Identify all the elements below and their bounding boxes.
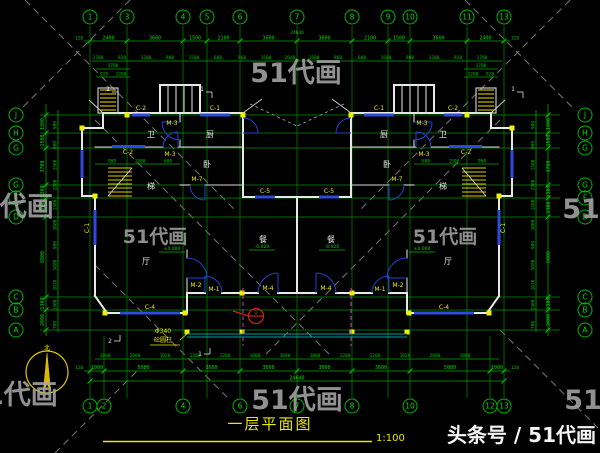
grid-bubble-right-label: G: [582, 144, 588, 153]
room-label-bath: 卫: [147, 130, 155, 139]
opening-label: M-7: [391, 176, 402, 183]
grid-bubble-top-label: 6: [238, 13, 243, 22]
grid-bubble-right-label: G: [582, 181, 588, 190]
dim-text-top: 1500: [393, 36, 405, 42]
column-marker: [103, 311, 108, 316]
dim-text-top: 3600: [432, 36, 444, 42]
north-label: 北: [44, 344, 50, 352]
dim-text-top: 2100: [217, 36, 229, 42]
grid-bubble-top-label: 5: [205, 13, 210, 22]
dim-text-left: 1500: [40, 134, 46, 146]
opening-label: C-1: [374, 105, 384, 112]
room-label-dining: 餐: [259, 235, 267, 244]
dim-text-right: 1300: [546, 185, 552, 197]
dim-text-top: 2400: [479, 36, 491, 42]
door-swing-arc: [243, 118, 258, 133]
dim-text-bottom: 3600: [205, 365, 217, 371]
dim-text-right-fine: 2200: [531, 179, 537, 190]
dim-text-top-fine: 600: [358, 55, 366, 61]
window: [255, 196, 275, 199]
plan-title: 一层平面图: [227, 415, 312, 433]
exterior-wall: [487, 296, 499, 313]
dim-text-bottom-fine: 2080: [130, 353, 141, 359]
room-label-stair: 梯: [439, 181, 447, 191]
section-mark: 2: [106, 86, 110, 93]
opening-label: C-2: [123, 149, 133, 156]
dim-text-top: 1500: [189, 36, 201, 42]
grid-bubble-top-label: 3: [125, 13, 130, 22]
bay-outline: [394, 85, 434, 113]
opening-label: C-2: [461, 149, 471, 156]
dim-text-interior: 900: [108, 159, 116, 165]
window: [414, 312, 474, 315]
column-marker: [487, 311, 492, 316]
dim-text-left: 1800: [40, 118, 46, 130]
grid-bubble-left-label: A: [13, 326, 19, 335]
section-mark: 1: [511, 86, 515, 93]
dim-text-right: 1800: [546, 118, 552, 130]
watermark-text: 51代画: [413, 226, 477, 248]
opening-label: C-4: [145, 304, 155, 311]
column-marker: [350, 291, 355, 296]
dim-text-bottom-fine: 1020: [400, 353, 411, 359]
dim-text-top-fine: 900: [406, 55, 414, 61]
dim-text-right-fine: 900: [531, 141, 537, 149]
roof-line: [332, 99, 351, 113]
opening-label: C-2: [448, 105, 458, 112]
window: [511, 150, 514, 178]
terrace-outline: [476, 88, 496, 113]
opening-label: C-2: [136, 105, 146, 112]
dim-text-interior: 600: [164, 159, 172, 165]
dim-text-right: 1900: [546, 201, 552, 213]
dim-text-left-fine: 2200: [53, 179, 59, 190]
dim-text-right: 2000: [546, 314, 552, 326]
grid-bubble-top-label: 13: [499, 13, 509, 22]
room-label-bedroom: 卧: [203, 160, 211, 169]
dim-text-bottom: 3600: [375, 365, 387, 371]
dim-text-top-total: 24640: [290, 30, 304, 36]
window: [81, 150, 84, 178]
section-mark: 1: [198, 351, 202, 358]
dim-text-terrace: 920: [100, 72, 108, 78]
dim-text-left-fine: 5080: [53, 259, 59, 270]
dim-text-right-fine: 5080: [531, 259, 537, 270]
room-label-dining: 餐: [327, 235, 335, 244]
dim-text-bottom: 3600: [262, 365, 274, 371]
grid-bubble-bottom-label: 4: [181, 402, 186, 411]
dim-text-bottom: 1000: [491, 365, 503, 371]
watermark-text: 51代画: [562, 194, 600, 225]
dim-text-left-fine: 1020: [53, 279, 59, 290]
dim-text-bottom-total: 24640: [289, 376, 304, 382]
dim-text-top-fine: 600: [214, 55, 222, 61]
level-mark: -0.020: [255, 244, 270, 250]
dim-text-right: 1300: [546, 297, 552, 309]
opening-label: M-3: [416, 120, 427, 127]
dim-text-bottom: 3600: [318, 365, 330, 371]
dim-text-right-fine: 900: [531, 121, 537, 129]
column-marker: [183, 311, 188, 316]
dim-text-right-fine: 1000: [531, 219, 537, 230]
dim-text-right-fine: 1500: [531, 159, 537, 170]
dim-text-bottom-fine: 2080: [430, 353, 441, 359]
floor-plan-canvas: 13456789101113124678101213JJHHGGGGFFDDCC…: [0, 0, 600, 453]
opening-label: M-1: [374, 286, 385, 293]
column-note-leader: [180, 333, 188, 340]
detail-callout-number: 1: [254, 310, 257, 316]
opening-label: C-1: [210, 105, 220, 112]
grid-bubble-right-label: C: [582, 293, 587, 302]
dim-text-bottom-fine: 1200: [220, 353, 231, 359]
dim-text-top-fine: 1200: [429, 55, 440, 61]
opening-label: C-4: [439, 304, 449, 311]
dim-text-top-fine: 1780: [477, 55, 488, 61]
grid-bubble-top-label: 1: [88, 13, 93, 22]
dim-text-left: 1300: [40, 297, 46, 309]
dim-text-right-fine: 700: [531, 321, 537, 329]
dim-text-top: 2100: [364, 36, 376, 42]
grid-bubble-right-label: A: [582, 326, 588, 335]
plan-scale: 1:100: [376, 433, 405, 444]
dim-text-top-fine: 1780: [93, 55, 104, 61]
exterior-wall: [95, 296, 107, 313]
watermark-text: 51代画: [0, 192, 54, 223]
room-label-living: 厅: [142, 257, 150, 266]
column-marker: [93, 194, 98, 199]
dim-text-terrace: 1780: [476, 63, 487, 69]
dim-text-right-fine: 1300: [531, 199, 537, 210]
dim-text-left-fine: 1500: [53, 159, 59, 170]
grid-bubble-left-label: C: [13, 293, 18, 302]
grid-bubble-bottom-label: 13: [499, 402, 509, 411]
dim-text-bottom-fine: 1020: [160, 353, 171, 359]
dim-text-right: 1500: [546, 134, 552, 146]
opening-label: M-3: [164, 151, 175, 158]
dim-text-right: 8000: [546, 251, 552, 263]
grid-bubble-top-label: 9: [386, 13, 391, 22]
dim-text-bottom: 120: [75, 365, 83, 371]
section-mark: 1: [200, 86, 204, 93]
opening-label: M-3: [166, 120, 177, 127]
dim-text-top-fine: 920: [454, 55, 462, 61]
dim-text-left-fine: 900: [53, 121, 59, 129]
column-marker: [497, 194, 502, 199]
dim-text-bottom-fine: 1000: [460, 353, 471, 359]
watermark-text: 51代画: [123, 226, 187, 248]
grid-bubble-left-label: J: [14, 111, 17, 120]
dim-text-bottom-fine: 1200: [370, 353, 381, 359]
dim-text-top: 120: [75, 36, 83, 42]
dim-text-interior: 1500: [449, 159, 460, 165]
column-marker: [240, 291, 245, 296]
bay-outline: [160, 85, 200, 113]
dim-text-bottom: 1000: [91, 365, 103, 371]
column-marker: [80, 126, 85, 131]
column-marker: [125, 113, 130, 118]
dim-text-bottom-fine: 1000: [100, 353, 111, 359]
grid-bubble-bottom-label: 8: [350, 402, 355, 411]
dim-text-left-fine: 900: [53, 241, 59, 249]
dim-text-interior: 600: [422, 159, 430, 165]
door-swing-arc: [387, 258, 407, 278]
dim-text-bottom-fine: 1200: [340, 353, 351, 359]
dim-text-left-fine: 700: [53, 321, 59, 329]
opening-label: M-4: [262, 285, 273, 292]
dim-text-left-fine: 1300: [53, 299, 59, 310]
watermark-text: 51代画: [564, 385, 600, 416]
watermark-text: 51代画: [250, 58, 342, 89]
watermark-byline: 头条号 / 51代画: [447, 423, 596, 447]
dim-text-top-fine: 1200: [141, 55, 152, 61]
opening-label: M-7: [191, 176, 202, 183]
dim-text-left: 2000: [40, 314, 46, 326]
column-marker: [465, 113, 470, 118]
window: [200, 114, 230, 117]
window: [94, 210, 97, 245]
dim-text-terrace: 1780: [108, 63, 119, 69]
opening-label: M-1: [208, 286, 219, 293]
dim-text-terrace: 1200: [116, 72, 127, 78]
opening-label: M-2: [392, 282, 403, 289]
grid-bubble-bottom-label: 12: [485, 402, 495, 411]
grid-bubble-bottom-label: 6: [238, 402, 243, 411]
column-note: Φ340: [155, 328, 171, 335]
grid-bubble-left-label: G: [13, 181, 19, 190]
column-note: 砼圆柱: [154, 336, 172, 344]
room-label-bath: 卫: [439, 130, 447, 139]
dim-text-right-fine: 1300: [531, 299, 537, 310]
dim-text-left-fine: 900: [53, 141, 59, 149]
roof-line: [243, 99, 262, 113]
grid-bubble-top-label: 10: [405, 13, 415, 22]
dim-text-top: 3600: [262, 36, 274, 42]
window: [444, 114, 462, 117]
dim-text-bottom: 5080: [137, 365, 149, 371]
dim-text-interior: 1500: [135, 159, 146, 165]
door-swing-arc: [336, 118, 351, 133]
room-label-bedroom: 卧: [383, 160, 391, 169]
dim-text-top-fine: 1500: [189, 55, 200, 61]
window: [449, 145, 482, 148]
dim-text-bottom-fine: 3600: [280, 353, 291, 359]
grid-bubble-left-label: H: [13, 129, 19, 138]
dim-text-top-fine: 960: [238, 55, 246, 61]
window: [364, 114, 394, 117]
opening-label: M-2: [190, 282, 201, 289]
dim-text-top: 120: [511, 36, 519, 42]
window: [120, 312, 180, 315]
grid-bubble-top-label: 11: [462, 13, 472, 22]
grid-bubble-top-label: 4: [181, 13, 186, 22]
dim-text-right: 3700: [546, 160, 552, 172]
room-label-living: 厅: [444, 257, 452, 266]
opening-label: M-3: [418, 151, 429, 158]
room-label-stair: 梯: [147, 181, 155, 191]
dim-text-top: 3600: [149, 36, 161, 42]
opening-label: C-5: [260, 188, 270, 195]
window: [319, 196, 339, 199]
dim-text-top: 3600: [318, 36, 330, 42]
dim-text-bottom-fine: 1000: [250, 353, 261, 359]
grid-bubble-right-label: H: [582, 129, 588, 138]
window: [132, 114, 150, 117]
dim-text-left: 3700: [40, 160, 46, 172]
dim-text-bottom-fine: 1000: [310, 353, 321, 359]
opening-label: C-1: [500, 223, 507, 233]
watermark-text: 51代画: [251, 385, 343, 416]
room-label-kitchen: 厨: [380, 130, 388, 139]
watermark-diagonal: [25, 0, 235, 210]
dim-text-top: 2400: [102, 36, 114, 42]
grid-bubble-top-label: 8: [350, 13, 355, 22]
grid-bubble-right-label: B: [582, 306, 587, 315]
door-swing-arc: [187, 258, 207, 278]
dim-text-right-fine: 1020: [531, 279, 537, 290]
column-marker: [407, 311, 412, 316]
opening-label: M-4: [320, 285, 331, 292]
watermark-text: 51代画: [0, 380, 58, 411]
dim-text-top-fine: 1500: [381, 55, 392, 61]
cad-viewport: 13456789101113124678101213JJHHGGGGFFDDCC…: [0, 0, 600, 453]
dim-text-top-fine: 900: [166, 55, 174, 61]
column-marker: [510, 126, 515, 131]
room-label-kitchen: 厨: [206, 130, 214, 139]
dim-text-left: 8000: [40, 251, 46, 263]
column-marker: [241, 113, 246, 118]
dim-text-bottom: 120: [511, 365, 519, 371]
dim-text-terrace: 920: [486, 72, 494, 78]
grid-bubble-left-label: B: [13, 306, 18, 315]
dim-text-bottom: 5080: [444, 365, 456, 371]
window: [112, 145, 145, 148]
dim-text-terrace: 1200: [468, 72, 479, 78]
column-marker: [349, 113, 354, 118]
dim-text-top-fine: 920: [118, 55, 126, 61]
grid-bubble-bottom-label: 2: [102, 402, 107, 411]
grid-bubble-top-label: 7: [295, 13, 300, 22]
opening-label: C-5: [324, 188, 334, 195]
dim-text-interior: 900: [478, 159, 486, 165]
dim-text-right-fine: 900: [531, 241, 537, 249]
level-mark: -0.020: [325, 244, 340, 250]
section-mark: 2: [108, 338, 112, 345]
detail-callout-leader: [233, 311, 249, 316]
grid-bubble-bottom-label: 10: [405, 402, 415, 411]
grid-bubble-right-label: J: [583, 111, 586, 120]
grid-bubble-left-label: G: [13, 144, 19, 153]
opening-label: C-1: [84, 223, 91, 233]
grid-bubble-bottom-label: 1: [88, 402, 93, 411]
